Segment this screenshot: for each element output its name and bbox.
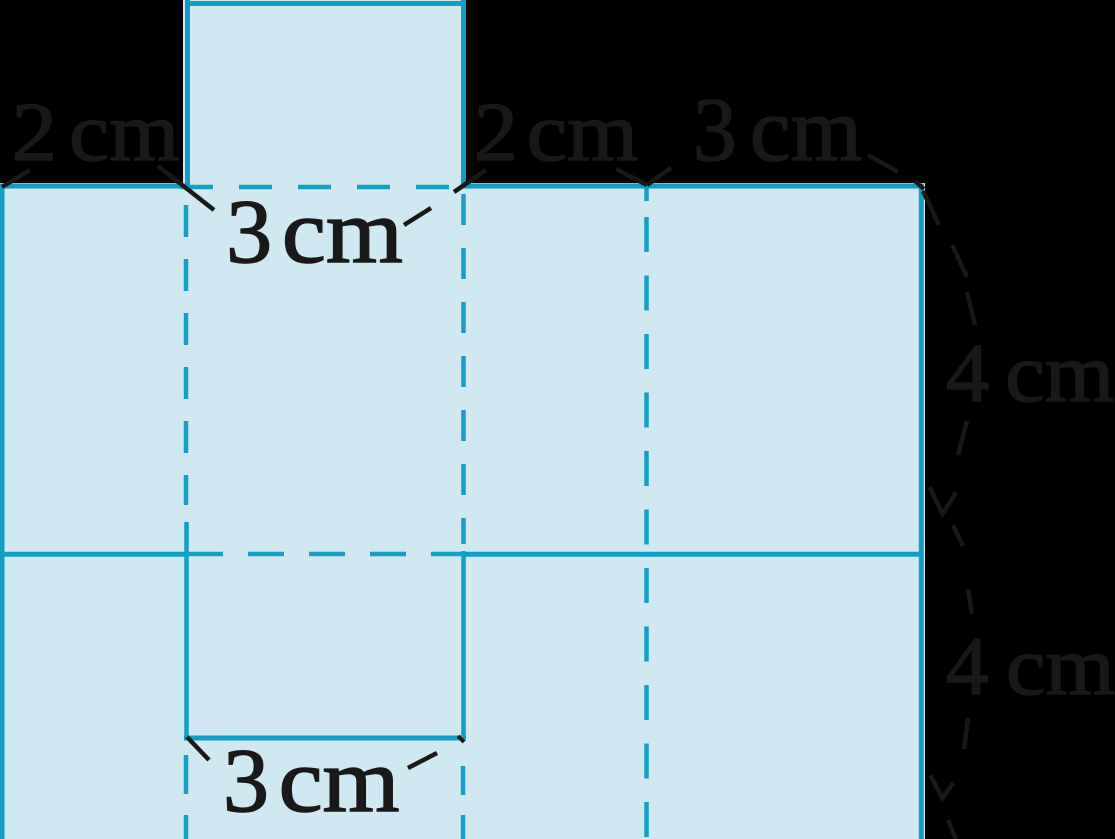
svg-text:3: 3 [223,730,269,831]
svg-text:cm: cm [282,181,403,282]
svg-text:cm: cm [1005,327,1114,420]
svg-text:2: 2 [12,86,58,179]
svg-text:cm: cm [69,86,179,179]
svg-text:cm: cm [1006,620,1115,713]
svg-text:4: 4 [946,327,989,420]
svg-text:2: 2 [474,86,518,179]
svg-text:cm: cm [527,86,639,179]
svg-text:cm: cm [279,730,400,831]
svg-text:cm: cm [750,79,862,180]
svg-text:4: 4 [946,620,988,713]
svg-text:3: 3 [226,181,272,282]
svg-text:3: 3 [693,79,737,180]
